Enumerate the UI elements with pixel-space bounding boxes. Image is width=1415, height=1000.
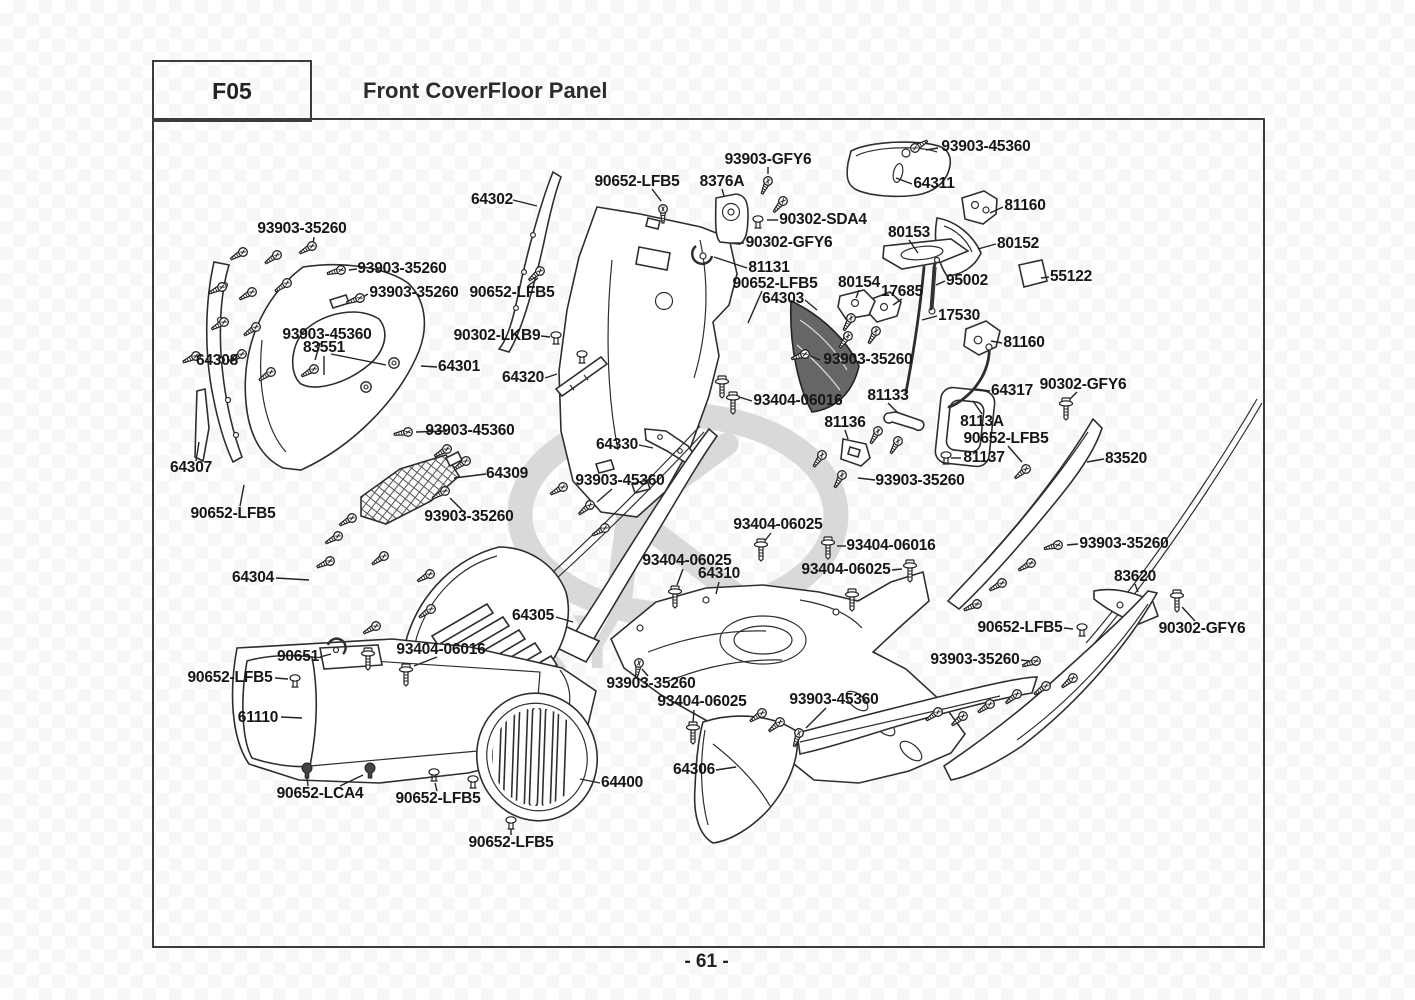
leader-line [281,717,302,718]
screw-icon [527,265,547,283]
part-label: 93903-35260 [823,351,912,369]
part-label: 17530 [938,307,980,325]
rivet-icon [302,763,312,778]
part-label: 64303 [762,290,804,308]
part-label: 8376A [700,173,745,191]
leader-line [975,389,990,391]
clip-icon [506,817,516,829]
screw-icon [976,698,996,716]
bolt-icon [904,560,917,582]
part-label: 93903-35260 [257,220,346,238]
leader-line [556,617,573,622]
part-label: 80153 [888,224,930,242]
screw-icon [393,427,413,439]
leader-line [639,445,653,448]
part-label: 83520 [1105,450,1147,468]
part-label: 64308 [196,352,238,370]
part-label: 93404-06025 [733,516,822,534]
part-label: 93903-35260 [875,472,964,490]
screw-icon [790,348,810,362]
part-label: 64301 [438,358,480,376]
leader-line [677,569,683,585]
bolt-icon [1060,398,1073,420]
leader-line [1041,277,1049,278]
screw-icon [300,363,320,380]
part-label: 64311 [913,175,954,193]
part-label: 90302-SDA4 [779,211,867,229]
screw-icon [831,469,848,489]
part-label: 90652-LFB5 [395,790,480,808]
screw-icon [207,281,227,297]
part-label: 90302-GFY6 [1159,620,1246,638]
part-label: 81136 [824,414,865,432]
bolt-icon [727,392,740,414]
part-label: 93903-45360 [425,422,514,440]
leader-line [748,291,762,323]
part-label: 93903-35260 [930,651,1019,669]
grommet-icon [361,382,371,392]
leader-line [597,489,612,502]
part-label: 81137 [963,449,1004,467]
screw-icon [836,330,854,350]
screw-icon [417,603,437,621]
bolt-icon [846,589,859,611]
screw-icon [1017,557,1037,574]
part-label: 93903-35260 [1079,535,1168,553]
clip-icon [551,332,561,344]
part-label: 93404-06016 [846,537,935,555]
part-label: 8113A [960,413,1004,431]
leader-line [1067,544,1078,545]
part-label: 81160 [1003,334,1044,352]
part-label: 64317 [991,382,1033,400]
screw-icon [324,530,344,547]
screw-icon [1043,540,1063,553]
screw-icon [242,321,262,339]
screw-icon [549,481,569,498]
screw-icon [659,205,668,223]
screw-icon [263,249,283,267]
leader-line [936,281,945,285]
leader-line [541,336,550,337]
screw-icon [758,175,774,195]
part-label: 93903-GFY6 [725,151,812,169]
leader-line [545,374,557,378]
screw-icon [962,598,982,614]
bolt-icon [687,722,700,744]
leader-line [990,207,1003,213]
part-label: 93903-45360 [575,472,664,490]
leader-line [810,356,820,360]
part-label: 64309 [486,465,528,483]
part-label: 17685 [881,283,923,301]
part-label: 80154 [838,274,880,292]
leader-line [276,578,309,580]
part-label: 93903-35260 [606,675,695,693]
screw-icon [988,577,1008,594]
part-label: 64304 [232,569,274,587]
screw-icon [229,246,249,263]
screw-icon [1032,680,1052,698]
part-label: 64310 [698,565,740,583]
bolt-icon [669,586,682,608]
part-label: 90652-LFB5 [468,834,553,852]
screw-icon [767,716,787,734]
bolt-icon [362,648,375,670]
screw-icon [840,312,857,332]
screw-icon [1060,672,1080,690]
leader-line [896,178,912,184]
part-label: 93404-06025 [801,561,890,579]
part-label: 93903-35260 [424,508,513,526]
leader-line [926,148,938,150]
part-label: 90652-LFB5 [963,430,1048,448]
leader-line [275,678,288,679]
leader-line [714,257,747,268]
screw-icon [338,512,358,529]
screw-icon [345,292,365,306]
screw-icon [431,485,451,502]
leader-line [240,485,244,506]
part-label: 90302-GFY6 [746,234,833,252]
part-label: 80152 [997,235,1039,253]
screw-icon [452,455,472,473]
part-label: 64305 [512,607,554,625]
clip-icon [468,776,478,788]
screw-icon [298,240,318,257]
part-label: 55122 [1050,268,1092,286]
screw-icon [370,550,390,568]
leader-line [922,316,937,320]
part-label: 64306 [673,761,715,779]
part-label: 93903-35260 [369,284,458,302]
part-label: 95002 [946,272,988,290]
leader-line [716,767,736,770]
part-label: 64302 [471,191,513,209]
screw-icon [433,443,453,460]
leader-line [1064,628,1073,629]
bolt-icon [716,376,729,398]
part-label: 64330 [596,436,638,454]
part-label: 90652-LFB5 [469,284,554,302]
screw-icon [416,568,436,585]
leader-line [805,300,817,310]
screw-icon [1013,463,1033,481]
part-label: 90652-LFB5 [187,669,272,687]
part-label: 90652-LFB5 [977,619,1062,637]
part-label: 90302-GFY6 [1040,376,1127,394]
leader-line [1021,660,1029,661]
screw-icon [790,727,804,747]
screw-icon [924,706,944,724]
part-label: 90652-LFB5 [190,505,275,523]
screw-icon [748,707,768,725]
leader-line [1182,607,1195,621]
screw-icon [257,366,277,384]
parts-catalog-page: F05 Front CoverFloor Panel KYMCO [0,0,1415,1000]
part-label: 64320 [502,369,544,387]
part-label: 83551 [303,339,345,357]
screw-icon [591,522,611,539]
leader-line [739,397,752,401]
leader-line [349,269,357,270]
screw-icon [887,435,904,455]
leader-line [858,478,875,480]
rivet-icon [365,763,375,778]
leader-line [991,341,1002,343]
grommet-icon [389,358,399,368]
screw-icon [577,499,597,517]
part-label: 81133 [867,387,908,405]
part-label: 90652-LFB5 [594,173,679,191]
part-label: 64400 [601,774,643,792]
part-label: 61110 [238,709,278,727]
part-label: 93903-45360 [941,138,1030,156]
bolt-icon [400,664,413,686]
screw-icon [273,277,293,295]
screw-icon [909,137,929,154]
leader-line [513,200,537,206]
clip-icon [1077,624,1087,636]
screw-icon [865,325,882,345]
leader-line [693,710,694,723]
screw-icon [867,425,884,445]
clip-icon [941,452,951,464]
part-label: 90652-LCA4 [277,785,364,803]
part-label: 64307 [170,459,212,477]
part-label: 81160 [1004,197,1045,215]
part-label: 83620 [1114,568,1156,586]
screw-icon [326,265,346,278]
bolt-icon [755,539,768,561]
part-label: 93404-06016 [753,392,842,410]
leader-line [1008,446,1022,462]
screw-icon [1021,655,1041,669]
leader-line [421,366,437,367]
screw-icon [315,555,335,571]
leader-line [892,569,902,570]
screw-icon [238,286,258,303]
leader-line [978,244,996,249]
clip-icon [290,675,300,687]
part-label: 93404-06025 [657,693,746,711]
leader-line [806,708,826,728]
part-label: 90302-LKB9 [454,327,541,345]
bolt-icon [822,537,835,559]
leader-line [454,474,486,478]
page-number: - 61 - [152,951,1261,973]
leader-line [580,779,600,783]
leader-line [320,654,331,657]
screw-icon [362,620,382,637]
callout-overlay [0,0,1415,1000]
screw-icon [950,710,970,728]
clip-icon [577,351,587,363]
clip-icon [429,769,439,781]
screw-icon [1004,688,1024,706]
part-label: 93903-45360 [789,691,878,709]
leader-line [716,582,719,594]
clip-icon [753,216,763,228]
part-label: 93404-06016 [396,641,485,659]
part-label: 90651 [277,648,319,666]
bolt-icon [1171,590,1184,612]
leader-line [1087,459,1104,462]
screw-icon [810,449,828,469]
screw-icon [210,316,230,333]
part-label: 93903-35260 [357,260,446,278]
